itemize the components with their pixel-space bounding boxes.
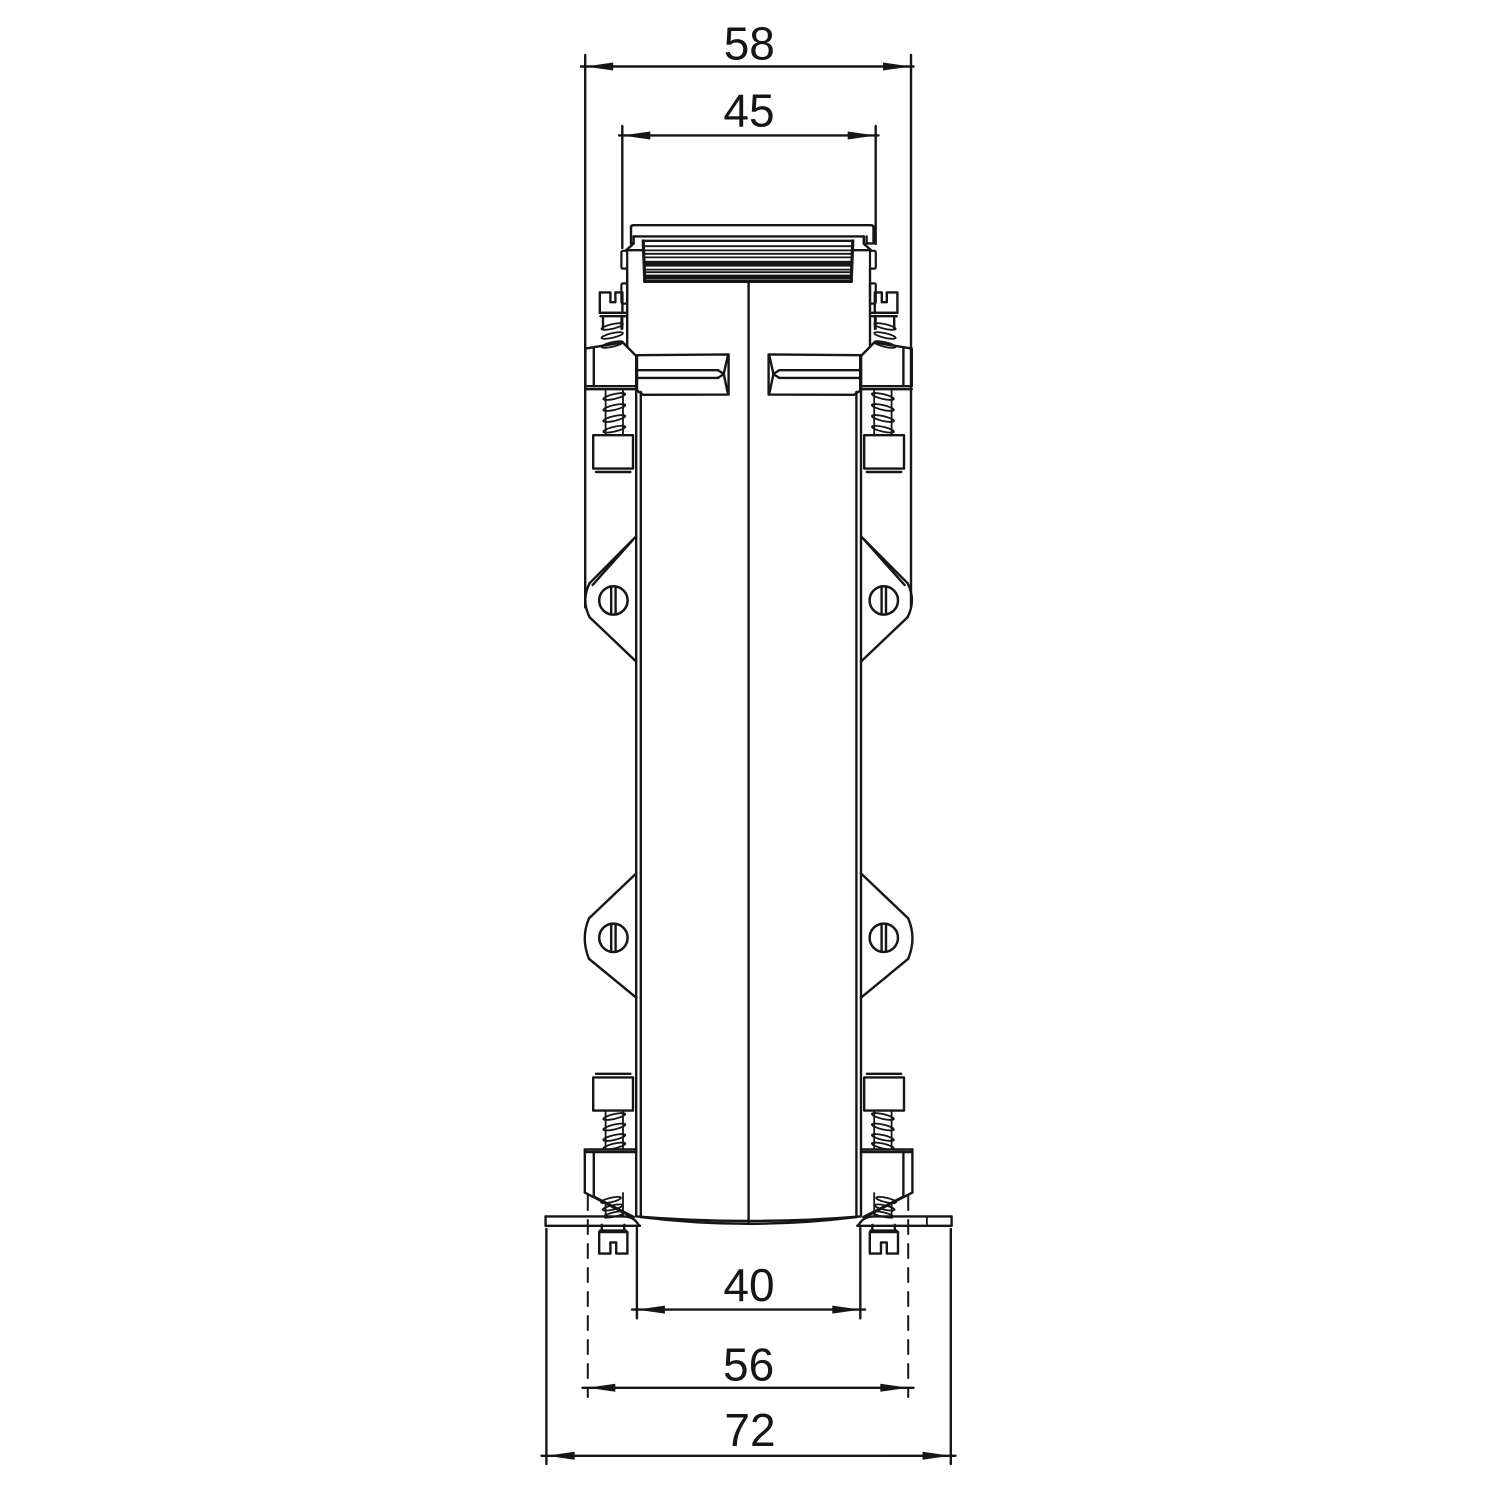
svg-text:58: 58 (724, 18, 775, 70)
svg-text:45: 45 (723, 85, 774, 137)
svg-text:56: 56 (723, 1339, 774, 1391)
svg-text:72: 72 (724, 1404, 775, 1456)
svg-text:40: 40 (723, 1259, 774, 1311)
